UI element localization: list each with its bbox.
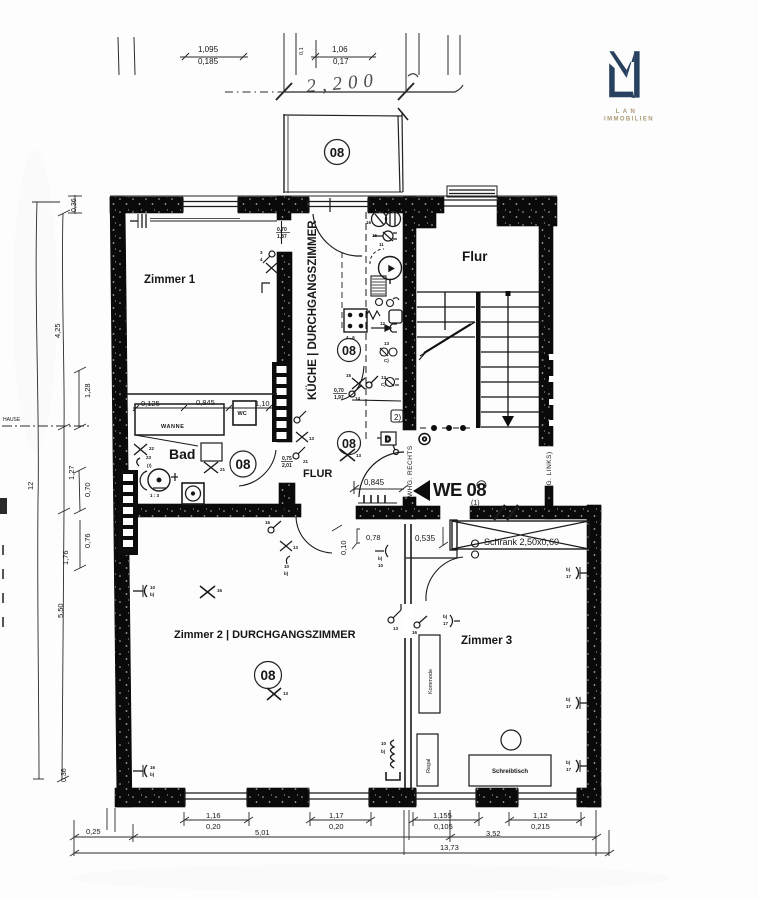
svg-text:0,125: 0,125 — [141, 399, 160, 408]
svg-text:b): b) — [381, 749, 386, 754]
svg-text:0,70: 0,70 — [334, 388, 344, 394]
svg-text:FLUR: FLUR — [303, 468, 332, 480]
svg-text:12: 12 — [26, 482, 35, 490]
svg-text:HAUSE: HAUSE — [3, 417, 21, 423]
svg-text:08: 08 — [235, 457, 251, 472]
svg-text:1,155: 1,155 — [433, 811, 452, 820]
svg-text:2): 2) — [394, 413, 401, 422]
svg-text:16: 16 — [372, 233, 378, 238]
svg-text:0,17: 0,17 — [333, 57, 349, 66]
svg-text:0,75: 0,75 — [282, 456, 292, 462]
svg-text:1,06: 1,06 — [332, 45, 348, 54]
svg-text:C): C) — [384, 358, 389, 363]
svg-text:WC: WC — [238, 411, 247, 417]
svg-text:08: 08 — [342, 437, 356, 451]
svg-text:Kommode: Kommode — [428, 669, 434, 694]
svg-text:21: 21 — [303, 459, 309, 464]
svg-text:LAN: LAN — [616, 109, 639, 115]
svg-text:17: 17 — [443, 621, 449, 626]
svg-text:14: 14 — [355, 396, 361, 401]
svg-text:1,28: 1,28 — [83, 383, 92, 398]
svg-text:13: 13 — [356, 453, 362, 458]
svg-text:b): b) — [378, 556, 383, 561]
svg-text:0,20: 0,20 — [329, 822, 344, 831]
svg-text:3,52: 3,52 — [486, 829, 501, 838]
svg-text:2,01: 2,01 — [282, 463, 292, 469]
svg-text:(1): (1) — [471, 500, 480, 507]
svg-text:16: 16 — [366, 220, 372, 225]
svg-text:4,25: 4,25 — [53, 323, 62, 338]
svg-text:0,76: 0,76 — [83, 533, 92, 548]
svg-text:WANNE: WANNE — [161, 424, 184, 430]
svg-text:13: 13 — [393, 626, 399, 631]
svg-text:Zimmer 2 | DURCHGANGSZIMMER: Zimmer 2 | DURCHGANGSZIMMER — [174, 629, 356, 641]
svg-text:WHG. RECHTS: WHG. RECHTS — [407, 445, 414, 497]
svg-text:0,535: 0,535 — [415, 534, 436, 543]
svg-text:b): b) — [566, 760, 571, 765]
svg-text:16: 16 — [217, 588, 223, 593]
svg-text:21: 21 — [220, 467, 226, 472]
svg-text:0,70: 0,70 — [277, 227, 287, 233]
svg-text:10: 10 — [381, 741, 387, 746]
svg-text:22: 22 — [149, 446, 155, 451]
svg-text:11: 11 — [133, 209, 138, 214]
svg-text:1,12: 1,12 — [533, 811, 548, 820]
svg-text:1,76: 1,76 — [61, 550, 70, 565]
svg-text:(WHG. LINKS): (WHG. LINKS) — [546, 451, 553, 500]
svg-text:C): C) — [381, 382, 386, 387]
svg-text:10: 10 — [150, 585, 156, 590]
svg-text:b): b) — [566, 697, 571, 702]
svg-text:1,17: 1,17 — [329, 811, 344, 820]
svg-text:1,16: 1,16 — [206, 811, 221, 820]
svg-text:13: 13 — [309, 436, 315, 441]
svg-text:KÜCHE | DURCHGANGSZIMMER: KÜCHE | DURCHGANGSZIMMER — [306, 220, 319, 400]
svg-text:17: 17 — [566, 704, 572, 709]
svg-text:11: 11 — [379, 242, 384, 247]
svg-text:08: 08 — [330, 145, 344, 160]
svg-text:(!): (!) — [147, 463, 152, 468]
svg-text:1,97: 1,97 — [334, 395, 344, 401]
svg-text:0,25: 0,25 — [86, 827, 101, 836]
svg-text:0,70: 0,70 — [83, 482, 92, 497]
svg-text:Bad: Bad — [169, 446, 195, 462]
svg-text:0,215: 0,215 — [531, 822, 550, 831]
svg-text:b): b) — [284, 571, 289, 576]
svg-text:0,36: 0,36 — [71, 198, 78, 212]
svg-text:16: 16 — [150, 765, 156, 770]
svg-text:08: 08 — [342, 344, 356, 358]
svg-text:10: 10 — [284, 564, 290, 569]
svg-text:1,10: 1,10 — [255, 399, 270, 408]
svg-text:D: D — [385, 435, 391, 444]
svg-text:08: 08 — [260, 668, 276, 683]
svg-text:Regal: Regal — [426, 759, 432, 773]
svg-text:5,50: 5,50 — [56, 603, 65, 618]
svg-text:23: 23 — [146, 455, 152, 460]
svg-text:1 : 3: 1 : 3 — [150, 493, 160, 498]
svg-text:1,87: 1,87 — [277, 234, 287, 240]
svg-text:13: 13 — [293, 545, 299, 550]
svg-text:17: 17 — [566, 767, 572, 772]
svg-text:0,78: 0,78 — [366, 533, 381, 542]
svg-text:0,20: 0,20 — [206, 822, 221, 831]
svg-text:IMMOBILIEN: IMMOBILIEN — [604, 117, 654, 123]
svg-text:10: 10 — [378, 563, 384, 568]
svg-text:16: 16 — [412, 630, 418, 635]
svg-text:13: 13 — [384, 341, 390, 346]
svg-text:0,10: 0,10 — [339, 540, 348, 555]
svg-text:b): b) — [150, 772, 155, 777]
svg-text:0,105: 0,105 — [434, 822, 453, 831]
svg-text:b): b) — [443, 614, 448, 619]
svg-text:Zimmer 3: Zimmer 3 — [461, 635, 512, 647]
svg-text:0,845: 0,845 — [364, 478, 385, 487]
svg-text:Flur: Flur — [462, 249, 488, 264]
svg-text:17: 17 — [566, 574, 572, 579]
svg-text:Zimmer 1: Zimmer 1 — [144, 274, 196, 286]
svg-text:13,73: 13,73 — [440, 843, 459, 852]
svg-text:13: 13 — [283, 691, 289, 696]
svg-text:0,1: 0,1 — [299, 47, 305, 55]
svg-text:5,01: 5,01 — [255, 828, 270, 837]
svg-text:13: 13 — [381, 375, 387, 380]
svg-text:1,095: 1,095 — [198, 45, 219, 54]
svg-text:Schreibtisch: Schreibtisch — [492, 769, 528, 775]
svg-text:Schrank 2,50x0,60: Schrank 2,50x0,60 — [484, 537, 559, 547]
svg-text:b): b) — [566, 567, 571, 572]
svg-text:0,185: 0,185 — [198, 57, 219, 66]
svg-text:b): b) — [150, 592, 155, 597]
svg-text:0,36: 0,36 — [61, 768, 68, 782]
svg-text:0,845: 0,845 — [196, 398, 215, 407]
svg-text:1,27: 1,27 — [67, 465, 76, 480]
svg-text:16: 16 — [265, 520, 271, 525]
svg-text:15: 15 — [346, 373, 352, 378]
